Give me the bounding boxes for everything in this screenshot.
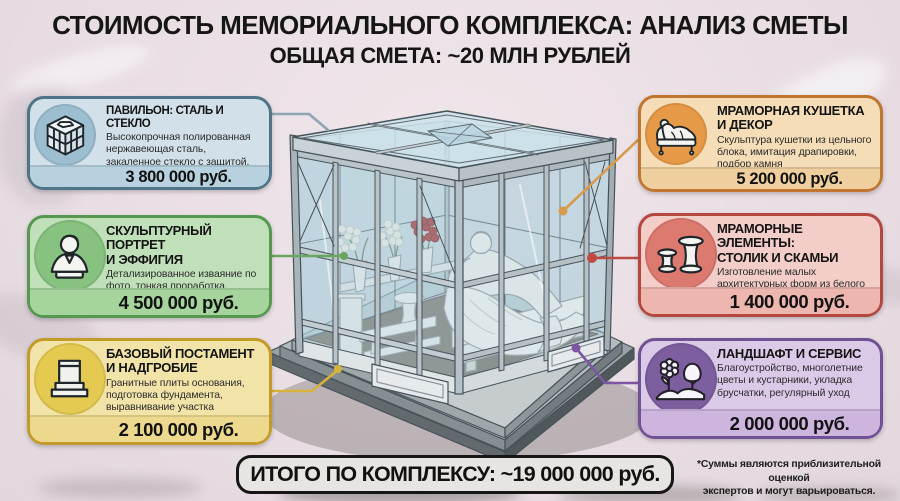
price-band: 5 200 000 руб. [641,167,880,189]
card-marble-couch: МРАМОРНАЯ КУШЕТКА И ДЕКОР Скульптура куш… [638,95,883,192]
connector-dot [572,344,581,353]
background-texture [40,478,200,498]
card-marble-elements: МРАМОРНЫЕ ЭЛЕМЕНТЫ: СТОЛИК И СКАМЬИ Изго… [638,213,883,317]
memorial-pavilion-illustration [250,70,650,475]
marble-couch-icon [645,103,707,165]
infographic: СТОИМОСТЬ МЕМОРИАЛЬНОГО КОМПЛЕКСА: АНАЛИ… [0,0,900,501]
card-description: Благоустройство, многолетние цветы и кус… [717,363,873,400]
pedestal-icon [34,343,106,415]
footnote-line-1: *Суммы являются приблизительной оценкой [681,458,897,485]
price-band: 2 000 000 руб. [641,409,880,436]
landscape-icon [645,343,717,415]
page-subtitle: ОБЩАЯ СМЕТА: ~20 МЛН РУБЛЕЙ [0,43,900,69]
price-label: 2 100 000 руб. [119,419,239,441]
price-label: 4 500 000 руб. [119,292,239,314]
card-description: Гранитные плиты основания, подготовка фу… [106,378,262,415]
page-title: СТОИМОСТЬ МЕМОРИАЛЬНОГО КОМПЛЕКСА: АНАЛИ… [0,10,900,41]
price-label: 3 800 000 руб. [125,168,231,187]
price-band: 3 800 000 руб. [30,165,269,187]
price-label: 1 400 000 руб. [730,291,850,313]
price-band: 2 100 000 руб. [30,415,269,442]
card-title: СКУЛЬПТУРНЫЙ ПОРТРЕТ И ЭФФИГИЯ [106,224,262,267]
header: СТОИМОСТЬ МЕМОРИАЛЬНОГО КОМПЛЕКСА: АНАЛИ… [0,10,900,69]
connector-dot [340,252,348,260]
card-landscape: ЛАНДШАФТ И СЕРВИС Благоустройство, много… [638,338,883,439]
total-cost-label: ИТОГО ПО КОМПЛЕКСУ: ~19 000 000 руб. [250,462,659,487]
price-band: 1 400 000 руб. [641,287,880,314]
price-band: 4 500 000 руб. [30,288,269,315]
total-cost-box: ИТОГО ПО КОМПЛЕКСУ: ~19 000 000 руб. [236,455,674,494]
glass-pavilion-icon [34,104,96,166]
card-pedestal: БАЗОВЫЙ ПОСТАМЕНТ И НАДГРОБИЕ Гранитные … [27,338,272,445]
connector-dot [587,253,597,263]
card-pavilion: ПАВИЛЬОН: СТАЛЬ И СТЕКЛО Высокопрочная п… [27,96,272,190]
connector-pavilion [272,114,328,130]
card-title: ЛАНДШАФТ И СЕРВИС [717,347,873,361]
card-title: МРАМОРНАЯ КУШЕТКА И ДЕКОР [717,104,873,133]
price-label: 5 200 000 руб. [736,170,842,189]
card-sculpture: СКУЛЬПТУРНЫЙ ПОРТРЕТ И ЭФФИГИЯ Детализир… [27,215,272,318]
price-label: 2 000 000 руб. [730,413,850,435]
sculpture-bust-icon [34,220,106,292]
table-and-bench-icon [645,218,717,290]
footnote: *Суммы являются приблизительной оценкой … [681,458,897,499]
connector-dot [559,207,568,216]
card-title: ПАВИЛЬОН: СТАЛЬ И СТЕКЛО [106,105,262,130]
footnote-line-2: экспертов и могут варьироваться. [681,485,897,499]
card-title: МРАМОРНЫЕ ЭЛЕМЕНТЫ: СТОЛИК И СКАМЬИ [717,222,873,265]
connector-dot [334,365,342,373]
card-title: БАЗОВЫЙ ПОСТАМЕНТ И НАДГРОБИЕ [106,347,262,376]
card-description: Скульптура кушетки из цельного блока, им… [717,135,873,172]
